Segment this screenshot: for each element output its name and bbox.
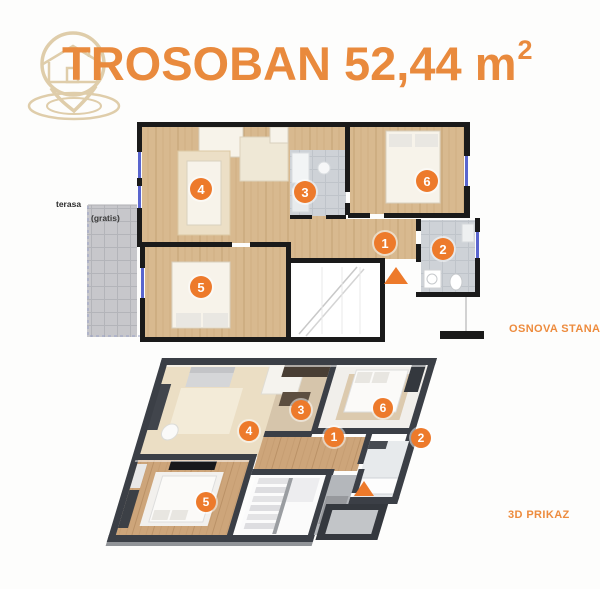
bath-shelf-3d [368,441,388,449]
room-badge-2d-4: 4 [190,178,212,200]
sofa-back-3d [189,367,235,373]
entrance-marker-3d [354,481,374,496]
room-badge-3d-5: 5 [196,492,216,512]
terrace-note-label: (gratis) [91,213,120,223]
plan-2d-caption: OSNOVA STANA [509,323,600,335]
tv-3d [168,461,217,470]
sink [462,224,474,242]
dining-table-2d [240,137,288,181]
room-badge-3d-6: 6 [373,398,393,418]
floor-plan-2d [87,122,484,342]
hallway-floor [290,219,416,259]
room-badge-2d-3: 3 [294,181,316,203]
toilet [450,274,462,290]
plan-3d-caption: 3D PRIKAZ [508,509,570,521]
kitchen-counter [292,153,309,183]
floor-plan-3d [106,358,441,546]
listing-floorplan-image: TROSOBAN 52,44 m2 [0,0,600,589]
pillow [389,134,412,147]
terrace-label: terasa [56,199,81,209]
cabinet-2d [270,127,288,143]
floorplan-drawing [0,0,600,589]
room-badge-3d-3: 3 [291,400,311,420]
pillow [415,134,438,147]
hall-floor-3d [253,437,367,471]
room-badge-2d-1: 1 [374,232,396,254]
room-badge-3d-4: 4 [239,421,259,441]
kitchen-sink [318,162,330,174]
room-badge-3d-1: 1 [324,427,344,447]
pillow [176,313,201,327]
room-badge-2d-5: 5 [190,276,212,298]
pillow [203,313,228,327]
room-badge-3d-2: 2 [411,428,431,448]
exterior-entry-3d [315,504,388,540]
pillow [151,510,170,520]
terrace-area [87,205,137,337]
room-badge-2d-6: 6 [416,170,438,192]
room-badge-2d-2: 2 [432,238,454,260]
entrance-marker-2d [384,267,408,284]
pillow [169,510,188,520]
